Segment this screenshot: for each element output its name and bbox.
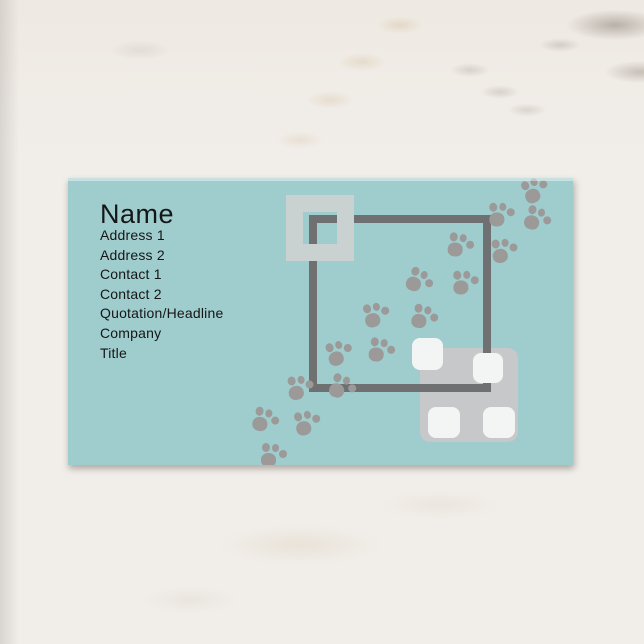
- paw-print-icon: [292, 407, 324, 439]
- field-line: Contact 1: [100, 265, 400, 285]
- white-square-decoration: [473, 353, 503, 383]
- contact-fields: Address 1Address 2Contact 1Contact 2Quot…: [100, 226, 400, 363]
- field-line: Title: [100, 344, 400, 364]
- paw-print-icon: [410, 303, 440, 333]
- field-line: Address 2: [100, 246, 400, 266]
- paw-print-icon: [327, 372, 359, 404]
- paw-print-icon: [286, 373, 316, 403]
- field-line: Address 1: [100, 226, 400, 246]
- white-square-decoration: [428, 407, 460, 438]
- marble-background: Name Address 1Address 2Contact 1Contact …: [0, 0, 644, 644]
- business-card: Name Address 1Address 2Contact 1Contact …: [68, 178, 573, 465]
- paw-print-icon: [452, 269, 480, 297]
- paw-print-icon: [251, 406, 281, 436]
- field-line: Contact 2: [100, 285, 400, 305]
- paw-print-icon: [488, 201, 516, 229]
- field-line: Company: [100, 324, 400, 344]
- white-square-decoration: [483, 407, 515, 438]
- paw-print-icon: [522, 204, 554, 236]
- white-square-decoration: [412, 338, 443, 370]
- field-line: Quotation/Headline: [100, 304, 400, 324]
- paw-print-icon: [261, 443, 287, 465]
- name-text: Name: [100, 199, 400, 229]
- paw-print-icon: [447, 232, 475, 260]
- paw-print-icon: [490, 236, 520, 266]
- paw-print-icon: [519, 178, 554, 207]
